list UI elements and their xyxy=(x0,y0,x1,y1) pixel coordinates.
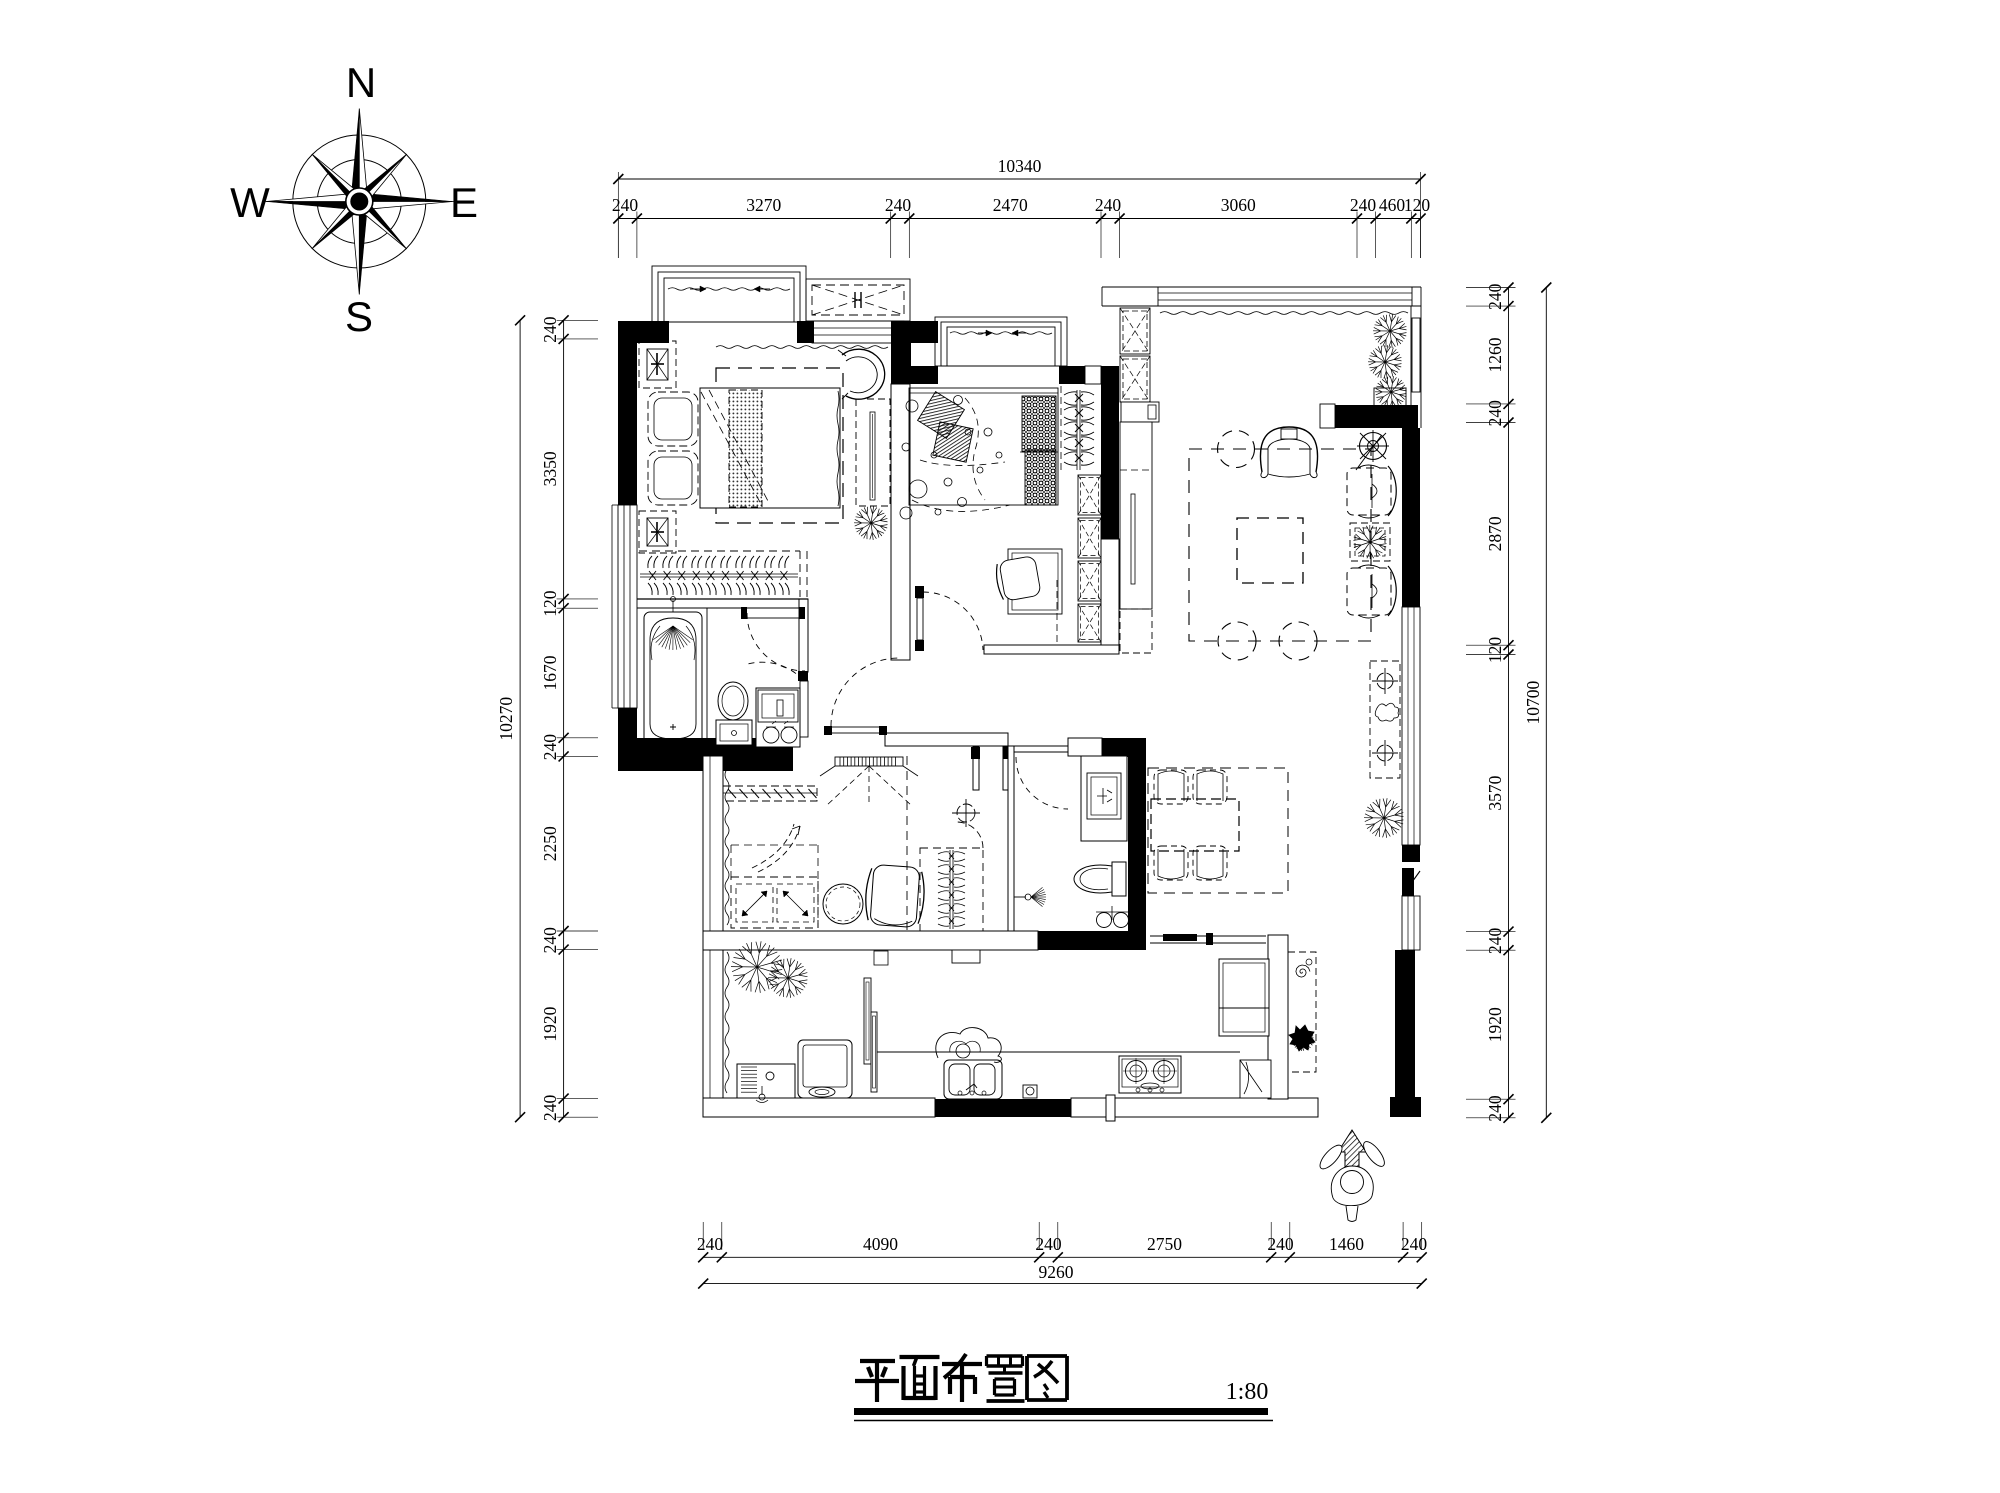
svg-text:1920: 1920 xyxy=(540,1006,560,1041)
svg-text:1670: 1670 xyxy=(540,655,560,690)
svg-text:1260: 1260 xyxy=(1485,337,1505,372)
svg-text:240: 240 xyxy=(1401,1234,1428,1254)
svg-text:240: 240 xyxy=(540,927,560,954)
svg-text:240: 240 xyxy=(1035,1234,1062,1254)
svg-text:240: 240 xyxy=(1350,195,1377,215)
svg-text:N: N xyxy=(346,59,376,106)
svg-text:240: 240 xyxy=(540,316,560,343)
svg-text:10270: 10270 xyxy=(496,697,516,741)
svg-text:W: W xyxy=(230,179,270,226)
svg-text:3570: 3570 xyxy=(1485,775,1505,810)
svg-text:240: 240 xyxy=(1485,928,1505,955)
svg-text:120: 120 xyxy=(1404,195,1431,215)
svg-text:240: 240 xyxy=(885,195,912,215)
svg-text:240: 240 xyxy=(1485,400,1505,427)
svg-text:120: 120 xyxy=(540,590,560,617)
svg-text:2870: 2870 xyxy=(1485,516,1505,551)
svg-text:3270: 3270 xyxy=(746,195,781,215)
svg-text:460: 460 xyxy=(1379,195,1406,215)
svg-text:120: 120 xyxy=(1485,637,1505,664)
svg-text:240: 240 xyxy=(697,1234,724,1254)
svg-text:9260: 9260 xyxy=(1039,1262,1074,1282)
svg-text:240: 240 xyxy=(612,195,639,215)
svg-text:240: 240 xyxy=(1095,195,1122,215)
svg-text:1:80: 1:80 xyxy=(1226,1379,1269,1405)
svg-text:2470: 2470 xyxy=(993,195,1028,215)
svg-text:240: 240 xyxy=(1267,1234,1294,1254)
svg-text:10340: 10340 xyxy=(998,156,1042,176)
svg-text:240: 240 xyxy=(1485,283,1505,310)
svg-text:1460: 1460 xyxy=(1329,1234,1364,1254)
svg-text:2250: 2250 xyxy=(540,826,560,861)
svg-text:S: S xyxy=(345,293,373,340)
svg-text:3060: 3060 xyxy=(1221,195,1256,215)
svg-text:10700: 10700 xyxy=(1523,680,1543,724)
svg-text:240: 240 xyxy=(1485,1095,1505,1122)
svg-text:240: 240 xyxy=(540,1095,560,1122)
svg-text:1920: 1920 xyxy=(1485,1007,1505,1042)
svg-text:4090: 4090 xyxy=(863,1234,898,1254)
svg-text:240: 240 xyxy=(540,734,560,761)
svg-text:E: E xyxy=(450,179,478,226)
svg-text:3350: 3350 xyxy=(540,451,560,486)
svg-text:2750: 2750 xyxy=(1147,1234,1182,1254)
